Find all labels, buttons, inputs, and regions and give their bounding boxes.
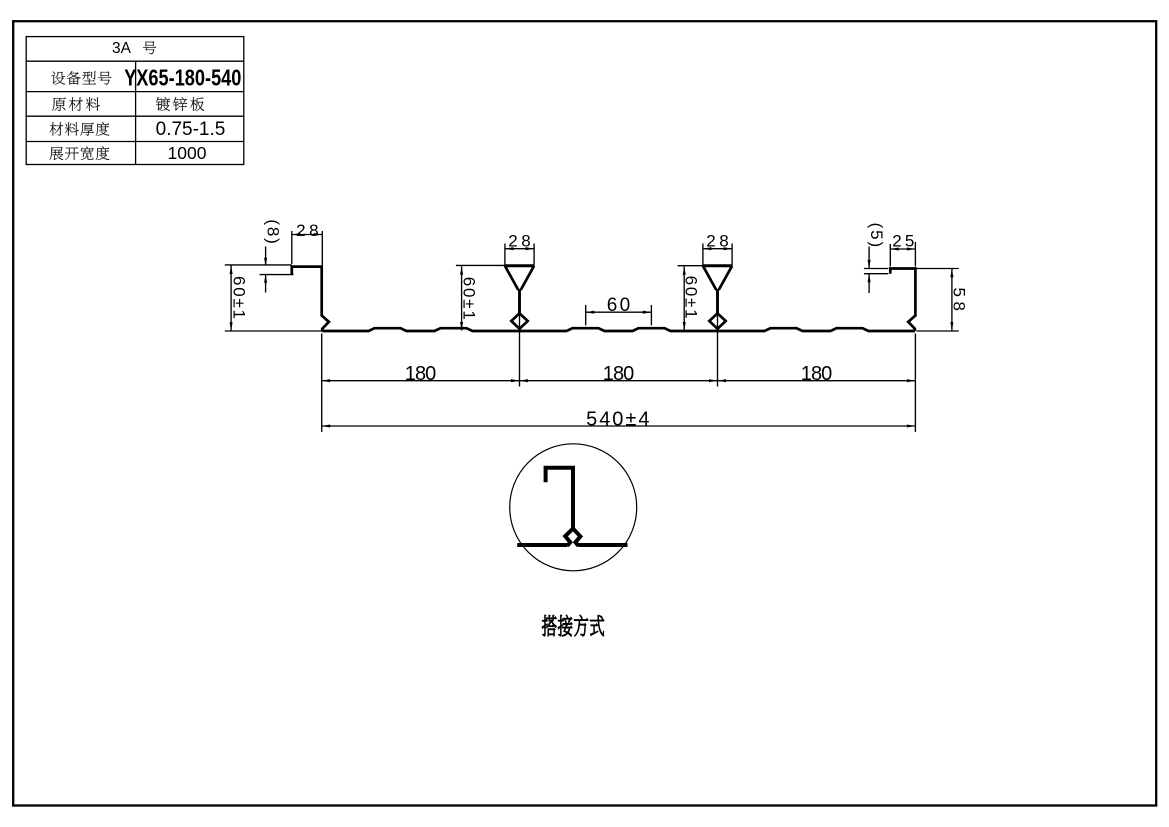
svg-text:540±4: 540±4 bbox=[586, 408, 649, 430]
svg-text:180: 180 bbox=[603, 363, 635, 385]
svg-text:(8): (8) bbox=[264, 219, 283, 244]
svg-text:180: 180 bbox=[405, 363, 437, 385]
svg-text:60±1: 60±1 bbox=[460, 277, 479, 320]
svg-text:(5): (5) bbox=[867, 223, 886, 248]
svg-text:YX65-180-540: YX65-180-540 bbox=[124, 64, 241, 90]
svg-text:0.75-1.5: 0.75-1.5 bbox=[156, 119, 226, 140]
svg-text:3A: 3A bbox=[112, 40, 132, 57]
svg-text:60±1: 60±1 bbox=[682, 276, 701, 319]
svg-text:180: 180 bbox=[801, 363, 833, 385]
svg-text:60±1: 60±1 bbox=[230, 276, 249, 319]
svg-text:1000: 1000 bbox=[168, 143, 207, 163]
